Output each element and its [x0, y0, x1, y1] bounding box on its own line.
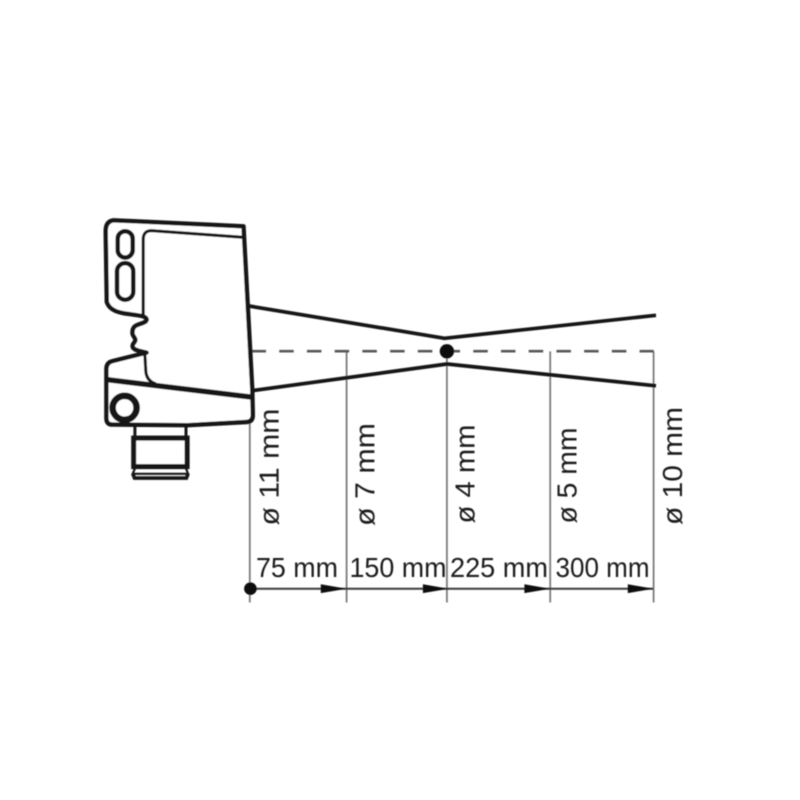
svg-text:300 mm: 300 mm	[556, 552, 650, 583]
svg-text:75 mm: 75 mm	[256, 552, 338, 583]
svg-text:ø 7 mm: ø 7 mm	[349, 423, 380, 526]
svg-text:ø 5 mm: ø 5 mm	[552, 428, 583, 524]
svg-text:ø 10 mm: ø 10 mm	[657, 407, 688, 525]
svg-text:ø 4 mm: ø 4 mm	[450, 425, 481, 524]
svg-text:225 mm: 225 mm	[450, 552, 548, 583]
svg-text:150 mm: 150 mm	[350, 552, 447, 583]
svg-text:ø 11 mm: ø 11 mm	[254, 409, 285, 526]
